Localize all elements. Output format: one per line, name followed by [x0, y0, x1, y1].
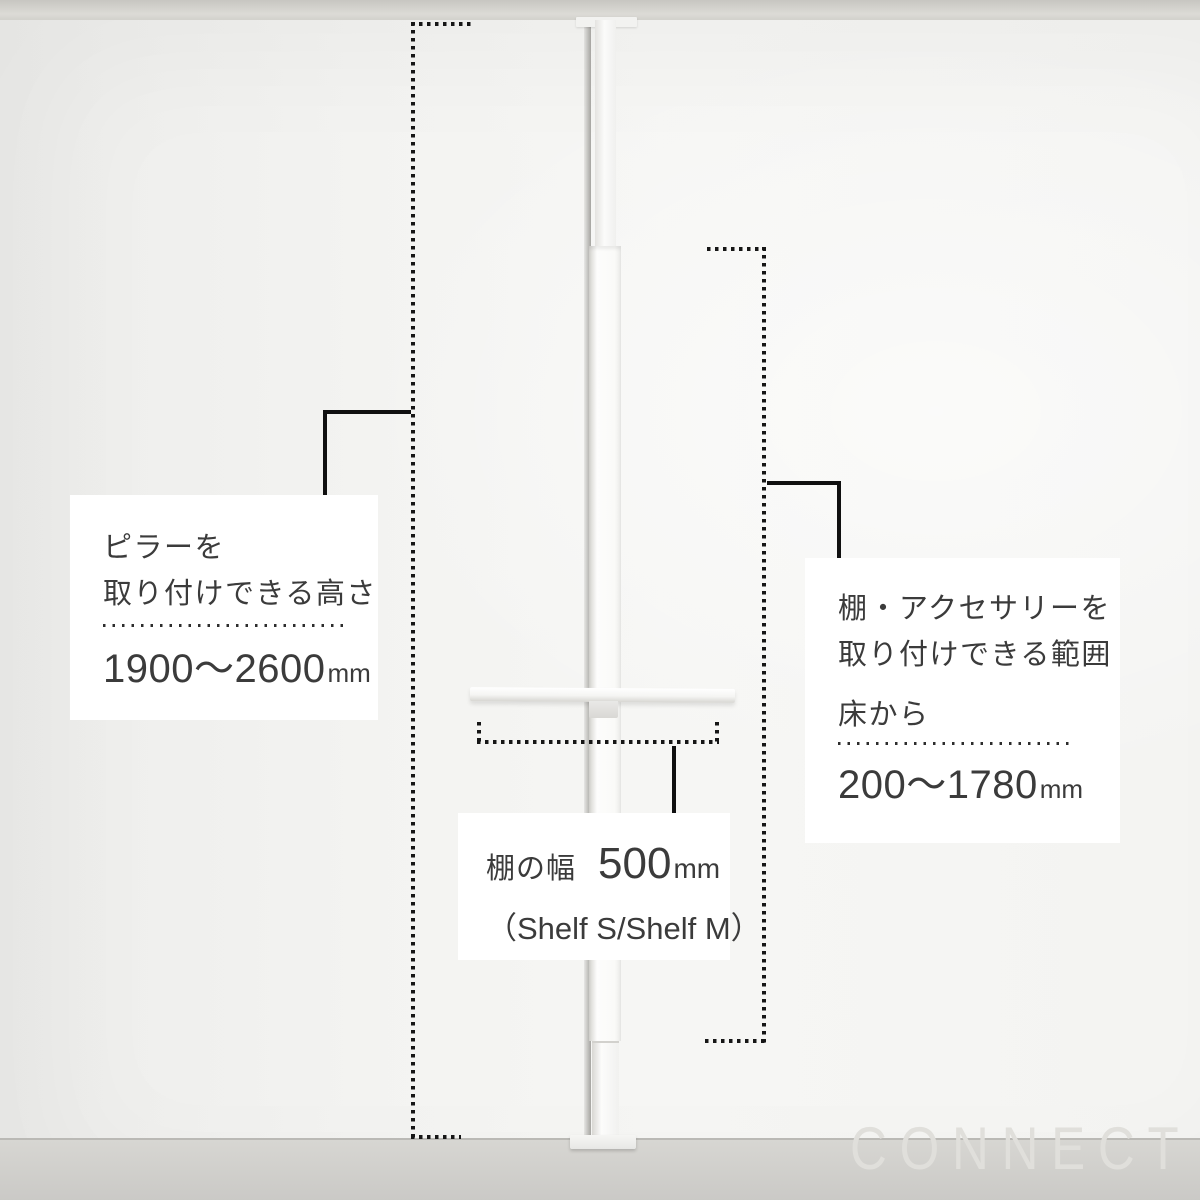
shelf-width-connector-v	[672, 746, 676, 814]
accessory-range-line1: 棚・アクセサリーを	[838, 586, 1092, 632]
shelf-width-dotted-left-tick	[477, 722, 481, 744]
pillar-height-dotted-line	[411, 22, 415, 1139]
accessory-range-connector-h	[767, 481, 841, 485]
dotted-separator	[838, 742, 1074, 745]
pillar-height-callout: ピラーを 取り付けできる高さ 1900〜2600 mm	[70, 495, 378, 720]
dotted-separator	[103, 624, 347, 627]
pole-upper-rod	[595, 20, 616, 246]
pillar-height-connector-v	[323, 410, 327, 496]
pillar-height-line2: 取り付けできる高さ	[103, 571, 350, 617]
pillar-height-dotted-bottom-tick	[411, 1135, 461, 1139]
pillar-height-line1: ピラーを	[103, 525, 350, 571]
shelf-width-dotted-right-tick	[715, 722, 719, 744]
pillar-height-value: 1900〜2600	[103, 636, 325, 694]
product-dimension-diagram: ピラーを 取り付けできる高さ 1900〜2600 mm 棚・アクセサリーを 取り…	[0, 0, 1200, 1200]
shelf-width-note: （Shelf S/Shelf M）	[486, 903, 710, 948]
accessory-range-dotted-top-tick	[707, 247, 766, 251]
shelf-width-callout: 棚の幅 500 mm （Shelf S/Shelf M）	[458, 813, 730, 960]
pillar-height-connector-h	[323, 410, 411, 414]
shelf-width-value: 500	[598, 839, 671, 889]
shelf-width-dotted-line	[477, 740, 719, 744]
accessory-range-prefix: 床から	[838, 692, 1092, 738]
shelf-bracket	[589, 701, 618, 718]
accessory-range-dotted-line	[762, 247, 766, 1043]
accessory-range-dotted-bottom-tick	[705, 1039, 766, 1043]
shelf-width-label: 棚の幅	[486, 845, 576, 887]
shelf-width-unit: mm	[673, 853, 720, 885]
accessory-range-connector-v	[837, 481, 841, 559]
connect-watermark: CONNECT	[850, 1114, 1191, 1183]
pillar-height-dotted-top-tick	[411, 22, 472, 26]
floor-base-plate	[570, 1135, 636, 1149]
accessory-range-unit: mm	[1040, 774, 1083, 805]
accessory-range-line2: 取り付けできる範囲	[838, 632, 1092, 678]
accessory-range-value: 200〜1780	[838, 752, 1038, 810]
accessory-range-callout: 棚・アクセサリーを 取り付けできる範囲 床から 200〜1780 mm	[805, 558, 1120, 843]
pillar-height-unit: mm	[327, 658, 370, 689]
pole-lower-sleeve	[592, 1041, 619, 1142]
